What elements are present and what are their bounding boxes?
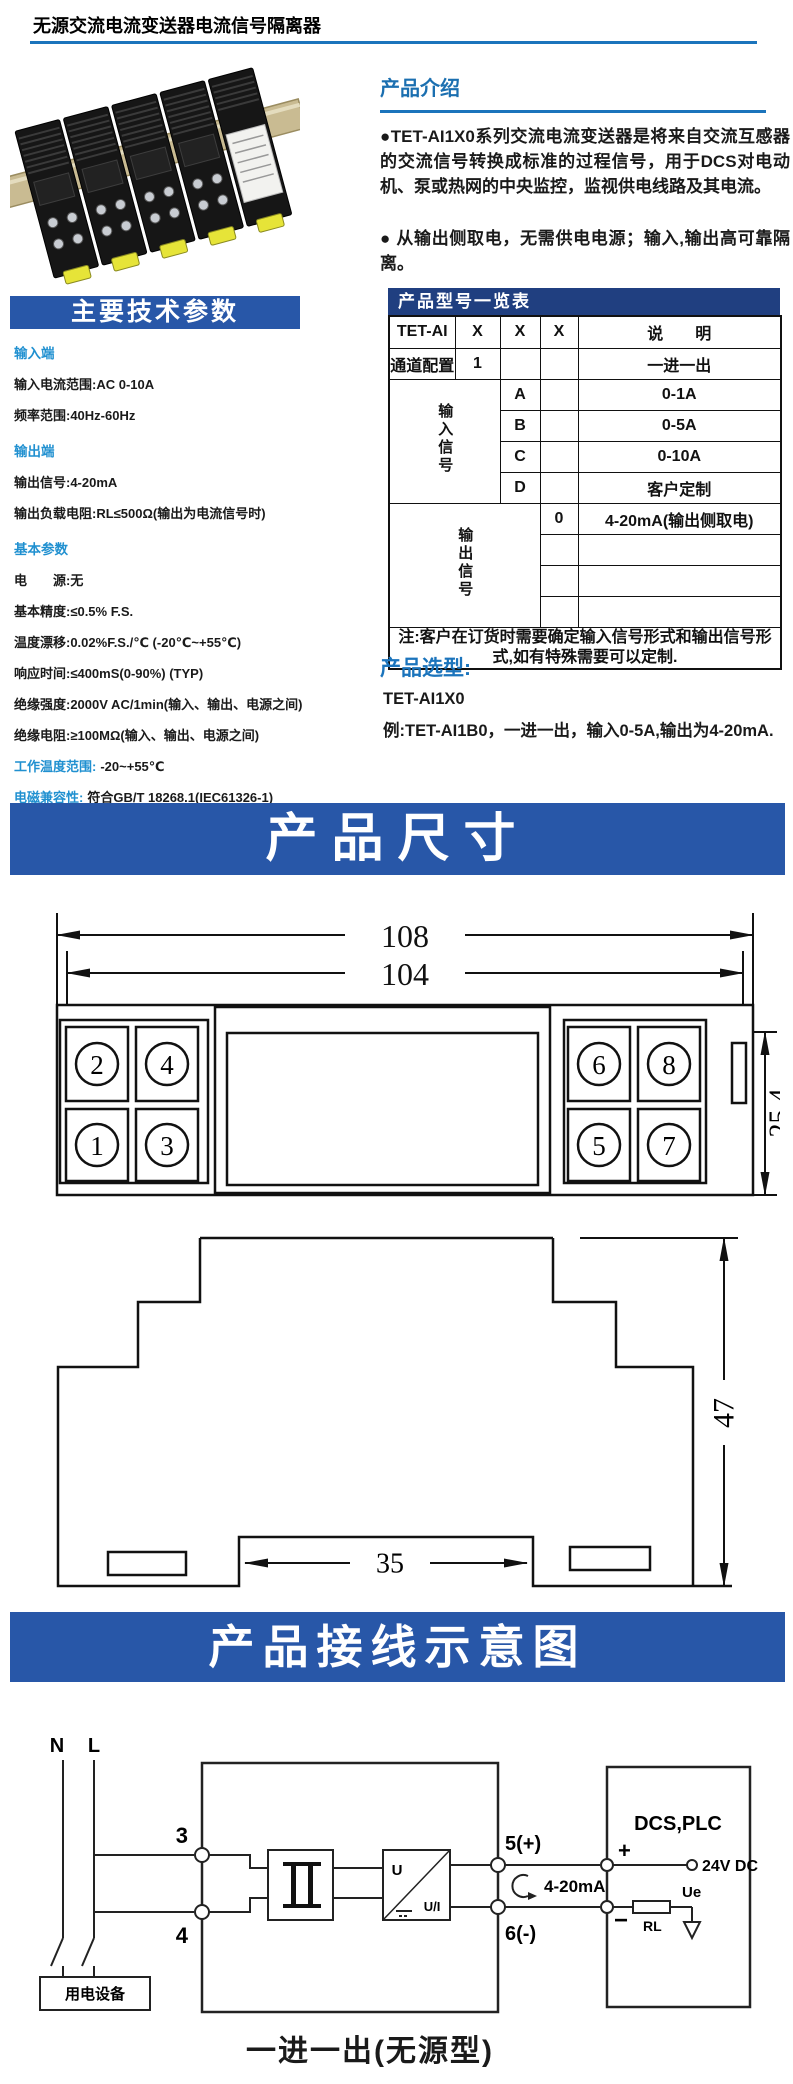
- intro-paragraph-1: ●TET-AI1X0系列交流电流变送器是将来自交流互感器的交流信号转换成标准的过…: [380, 124, 790, 199]
- tech-params-list: 输入端 输入电流范围:AC 0-10A 频率范围:40Hz-60Hz 输出端 输…: [14, 326, 314, 818]
- product-spec-page: 无源交流电流变送器电流信号隔离器: [0, 0, 793, 2084]
- signal-label: 4-20mA: [544, 1877, 605, 1896]
- output-code: 0: [540, 503, 578, 534]
- digit-x1: X: [455, 316, 500, 348]
- dcs-plus-node: [601, 1859, 613, 1871]
- dimensions-banner: 产品尺寸: [10, 803, 785, 875]
- table-row: 输入信号 A 0-1A: [389, 379, 781, 410]
- digit-x3: X: [540, 316, 578, 348]
- param-item: 输出负载电阻:RL≤500Ω(输出为电流信号时): [14, 503, 314, 522]
- minus-label: −: [614, 1907, 628, 1934]
- dcs-box: [607, 1767, 750, 2007]
- label-line: L: [88, 1735, 100, 1757]
- input-code: D: [500, 472, 540, 503]
- dimension-drawing: 108 104 2 4 1 3 6 8 5: [20, 885, 780, 1600]
- param-item: 频率范围:40Hz-60Hz: [14, 405, 314, 424]
- desc-header: 说 明: [578, 316, 781, 348]
- terminal-3: 3: [160, 1131, 174, 1161]
- terminal-3-node: [195, 1848, 209, 1862]
- terminal-1: 1: [90, 1131, 104, 1161]
- ue-label: Ue: [682, 1884, 701, 1901]
- selection-example: 例:TET-AI1B0，一进一出，输入0-5A,输出为4-20mA.: [383, 717, 774, 741]
- label-neutral: N: [50, 1735, 64, 1757]
- converter-ui-label: U/I: [424, 1899, 441, 1914]
- input-code: C: [500, 441, 540, 472]
- terminal-block-left: [66, 1027, 198, 1181]
- group-heading-output: 输出端: [14, 440, 314, 460]
- load-label: 用电设备: [65, 1985, 126, 2003]
- supply-node: [687, 1860, 697, 1870]
- terminal-7: 7: [662, 1131, 676, 1161]
- dim-rail-width: 35: [376, 1549, 404, 1580]
- input-desc: 0-10A: [578, 441, 781, 472]
- intro-heading: 产品介绍: [380, 72, 460, 101]
- transformer-box: [268, 1850, 333, 1920]
- transmitter-box: [202, 1763, 498, 2012]
- param-item: 绝缘电阻:≥100MΩ(输入、输出、电源之间): [14, 725, 314, 744]
- intro-divider: [380, 110, 766, 113]
- terminal-block-right: [568, 1027, 700, 1181]
- dc-symbol-icon: [396, 1911, 412, 1916]
- terminal-5-label: 5(+): [505, 1833, 541, 1855]
- dim-width-outer: 108: [381, 918, 429, 954]
- transformer-icon: [283, 1862, 321, 1908]
- input-code: B: [500, 410, 540, 441]
- title-divider: [30, 41, 757, 44]
- table-row: 输出信号 0 4-20mA(输出侧取电): [389, 503, 781, 534]
- param-item: 温度漂移:0.02%F.S./℃ (-20℃~+55℃): [14, 632, 314, 651]
- param-item: 响应时间:≤400mS(0-90%) (TYP): [14, 663, 314, 682]
- model-table-title: 产品型号一览表: [388, 288, 780, 315]
- dim-height: 47: [708, 1398, 741, 1428]
- param-item: 输入电流范围:AC 0-10A: [14, 374, 314, 393]
- terminal-4-node: [195, 1905, 209, 1919]
- page-title: 无源交流电流变送器电流信号隔离器: [33, 12, 321, 38]
- terminal-8: 8: [662, 1050, 676, 1080]
- converter-u-label: U: [392, 1862, 403, 1879]
- wiring-caption: 一进一出(无源型): [60, 2026, 680, 2070]
- input-desc: 0-5A: [578, 410, 781, 441]
- selection-model: TET-AI1X0: [383, 690, 465, 709]
- terminal-3-label: 3: [176, 1823, 188, 1848]
- plus-label: +: [618, 1838, 631, 1863]
- model-prefix: TET-AI: [389, 316, 455, 348]
- param-item: 电 源:无: [14, 570, 314, 589]
- dcs-minus-node: [601, 1901, 613, 1913]
- table-row: TET-AI X X X 说 明: [389, 316, 781, 348]
- selection-heading: 产品选型:: [380, 652, 471, 682]
- current-loop-arrowhead: [528, 1892, 537, 1900]
- model-table: 产品型号一览表 TET-AI X X X 说 明 通道配置 1 一进一出 输入信…: [388, 288, 782, 670]
- wiring-diagram: N L 用电设备 3 4: [0, 1700, 793, 2030]
- input-desc: 0-1A: [578, 379, 781, 410]
- terminal-5-node: [491, 1858, 505, 1872]
- param-item: 绝缘强度:2000V AC/1min(输入、输出、电源之间): [14, 694, 314, 713]
- terminal-6: 6: [592, 1050, 606, 1080]
- param-item: 基本精度:≤0.5% F.S.: [14, 601, 314, 620]
- terminal-6-label: 6(-): [505, 1923, 536, 1945]
- supply-label: 24V DC: [702, 1858, 758, 1875]
- terminal-6-node: [491, 1900, 505, 1914]
- wiring-banner: 产品接线示意图: [10, 1612, 785, 1682]
- channel-label: 通道配置: [389, 348, 455, 379]
- param-item-working-temp: 工作温度范围:-20~+55℃: [14, 756, 314, 775]
- output-signal-group: 输出信号: [389, 503, 540, 627]
- product-photo: [10, 55, 300, 293]
- output-desc: 4-20mA(输出侧取电): [578, 503, 781, 534]
- input-code: A: [500, 379, 540, 410]
- rl-label: RL: [643, 1918, 662, 1934]
- digit-x2: X: [500, 316, 540, 348]
- dcs-label: DCS,PLC: [634, 1813, 722, 1835]
- group-heading-basic: 基本参数: [14, 538, 314, 558]
- input-desc: 客户定制: [578, 472, 781, 503]
- dim-width-inner: 104: [381, 956, 429, 992]
- current-loop-arrow-icon: [512, 1875, 528, 1897]
- tech-params-banner: 主要技术参数: [10, 296, 300, 329]
- channel-desc: 一进一出: [578, 348, 781, 379]
- terminal-5: 5: [592, 1131, 606, 1161]
- table-row: 通道配置 1 一进一出: [389, 348, 781, 379]
- group-heading-input: 输入端: [14, 342, 314, 362]
- input-signal-group: 输入信号: [389, 379, 500, 503]
- channel-code: 1: [455, 348, 500, 379]
- module-row: [15, 68, 294, 287]
- intro-paragraph-2: ● 从输出侧取电，无需供电电源；输入,输出高可靠隔离。: [380, 226, 790, 276]
- terminal-4: 4: [160, 1050, 174, 1080]
- param-item: 输出信号:4-20mA: [14, 472, 314, 491]
- dim-depth: 25.4: [765, 1089, 781, 1138]
- side-view-outline: [58, 1238, 732, 1586]
- terminal-2: 2: [90, 1050, 104, 1080]
- terminal-4-label: 4: [176, 1923, 189, 1948]
